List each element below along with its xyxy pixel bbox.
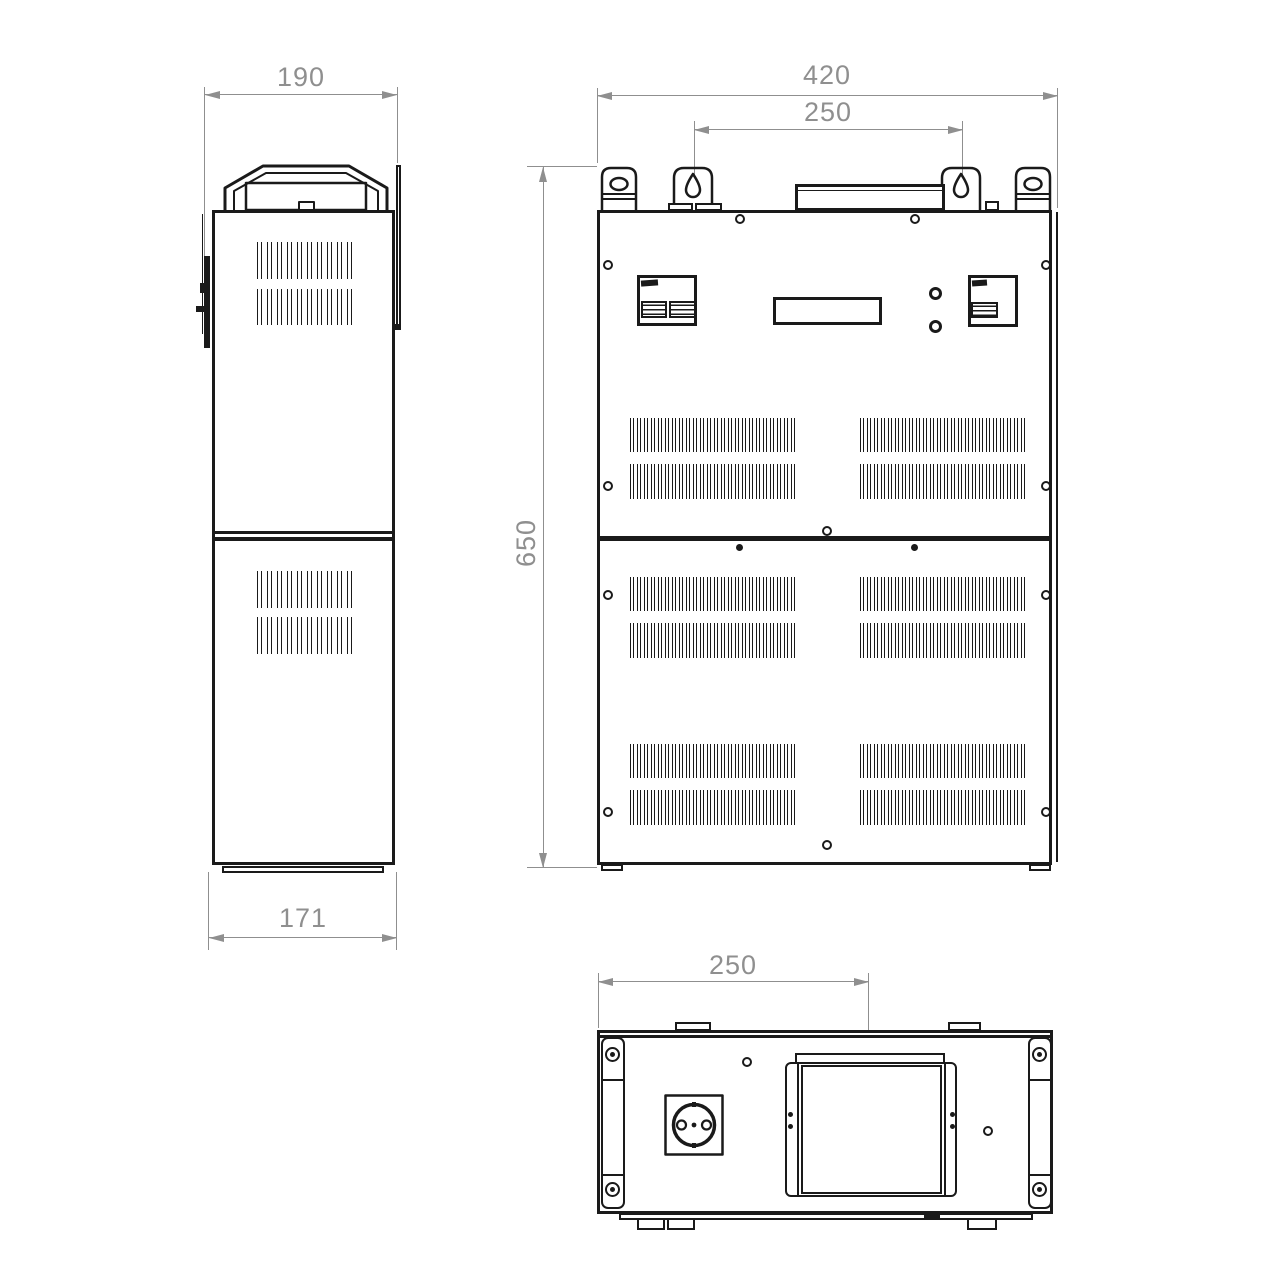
bracket-foot (668, 203, 693, 211)
screw (1041, 590, 1051, 600)
screw (1041, 481, 1051, 491)
cable-wedge (924, 1213, 940, 1219)
dim-arrow (205, 91, 220, 99)
dim-label: 420 (777, 60, 877, 90)
base-foot (601, 864, 623, 871)
terminal-stripes (971, 302, 998, 318)
dim-line (209, 937, 397, 938)
power-socket (664, 1094, 724, 1156)
rivet (911, 544, 918, 551)
screw (1041, 807, 1051, 817)
vent-grid (630, 744, 796, 778)
base-foot (667, 1218, 695, 1230)
plate-screw (788, 1124, 793, 1129)
dim-arrow (854, 978, 869, 986)
dim-arrow (597, 92, 612, 100)
rail-screw-center (610, 1187, 615, 1192)
rail-screw-center (610, 1052, 615, 1057)
panel-divider (212, 537, 395, 541)
dim-label: 190 (251, 62, 351, 92)
screw (983, 1126, 993, 1136)
vent-grid (257, 242, 353, 279)
bottom-top-edge (600, 1035, 1050, 1038)
rail-crossbar (603, 1174, 623, 1176)
keyhole-bracket-profile (200, 283, 206, 293)
vent-grid (630, 577, 796, 611)
dim-arrow (382, 91, 397, 99)
keyhole-bracket-hook (196, 306, 205, 312)
screw (822, 526, 832, 536)
rail-crossbar (1030, 1174, 1050, 1176)
vent-grid (860, 418, 1026, 452)
rail-crossbar (1030, 1079, 1050, 1081)
dim-arrow (539, 853, 547, 868)
dim-line (597, 95, 1058, 96)
plate-screw (788, 1112, 793, 1117)
plate-screw (950, 1112, 955, 1117)
dim-arrow (598, 978, 613, 986)
base-lip (222, 866, 384, 873)
top-bump (985, 201, 999, 211)
screw (603, 481, 613, 491)
dim-extension-line (597, 88, 598, 163)
panel-divider (597, 536, 1052, 541)
vent-grid (860, 464, 1026, 499)
dim-arrow (1043, 92, 1058, 100)
screw (742, 1057, 752, 1067)
dim-extension-line (1057, 88, 1058, 208)
cover-plate-rail (797, 1064, 799, 1195)
dim-arrow (948, 126, 963, 134)
dimension-drawing: 190 (0, 0, 1280, 1280)
screw (822, 840, 832, 850)
rail-screw-center (1037, 1052, 1042, 1057)
keyhole-bracket (939, 165, 983, 211)
handle-bar (795, 184, 945, 211)
dim-arrow (694, 126, 709, 134)
dim-arrow (539, 167, 547, 182)
vent-grid (860, 790, 1026, 825)
dim-line (205, 94, 397, 95)
keyhole-bracket-profile (204, 256, 210, 348)
screw (603, 590, 613, 600)
vent-grid (860, 744, 1026, 778)
screw (1041, 260, 1051, 270)
panel-divider (212, 531, 395, 534)
display-window (773, 297, 882, 325)
bracket-foot (695, 203, 722, 211)
rail-screw-center (1037, 1187, 1042, 1192)
control-button (929, 287, 942, 300)
dim-arrow (209, 934, 224, 942)
dim-label: 171 (253, 903, 353, 933)
vent-grid (257, 571, 353, 608)
control-button (929, 320, 942, 333)
cover-plate-rail (944, 1064, 946, 1195)
side-panel-edge (202, 214, 203, 334)
vent-grid (630, 464, 796, 499)
dim-line (598, 981, 869, 982)
corner-tab (1013, 165, 1053, 211)
dim-arrow (382, 934, 397, 942)
terminal-stripes (669, 301, 696, 318)
brand-logo-mark (972, 279, 987, 286)
rivet (736, 544, 743, 551)
base-foot (637, 1218, 665, 1230)
handle-bar-line (798, 190, 942, 191)
corner-tab (599, 165, 639, 211)
side-flange-line (1056, 212, 1058, 862)
cover-plate-inner (801, 1065, 942, 1194)
screw (603, 807, 613, 817)
dim-extension-line (527, 166, 597, 167)
rail-crossbar (603, 1079, 623, 1081)
brand-logo-mark (641, 279, 658, 286)
plate-screw (950, 1124, 955, 1129)
top-tab (675, 1022, 711, 1031)
base-foot (1029, 864, 1051, 871)
vent-grid (860, 623, 1026, 658)
dim-label: 250 (683, 950, 783, 980)
dim-label: 650 (511, 497, 547, 589)
dim-line (694, 129, 963, 130)
vent-grid (630, 418, 796, 452)
terminal-stripes (641, 301, 667, 318)
screw (910, 214, 920, 224)
wall-bracket (396, 165, 401, 329)
dim-extension-line (527, 867, 597, 868)
vent-grid (630, 623, 796, 658)
dim-line (543, 167, 544, 868)
top-tab (948, 1022, 981, 1031)
vent-grid (630, 790, 796, 825)
vent-grid (860, 577, 1026, 611)
base-foot (967, 1218, 997, 1230)
dim-extension-line (598, 973, 599, 1028)
screw (603, 260, 613, 270)
vent-grid (257, 289, 353, 325)
screw (735, 214, 745, 224)
dim-extension-line (397, 87, 398, 163)
top-handle (213, 158, 399, 212)
vent-grid (257, 617, 353, 654)
dim-label: 250 (778, 97, 878, 127)
